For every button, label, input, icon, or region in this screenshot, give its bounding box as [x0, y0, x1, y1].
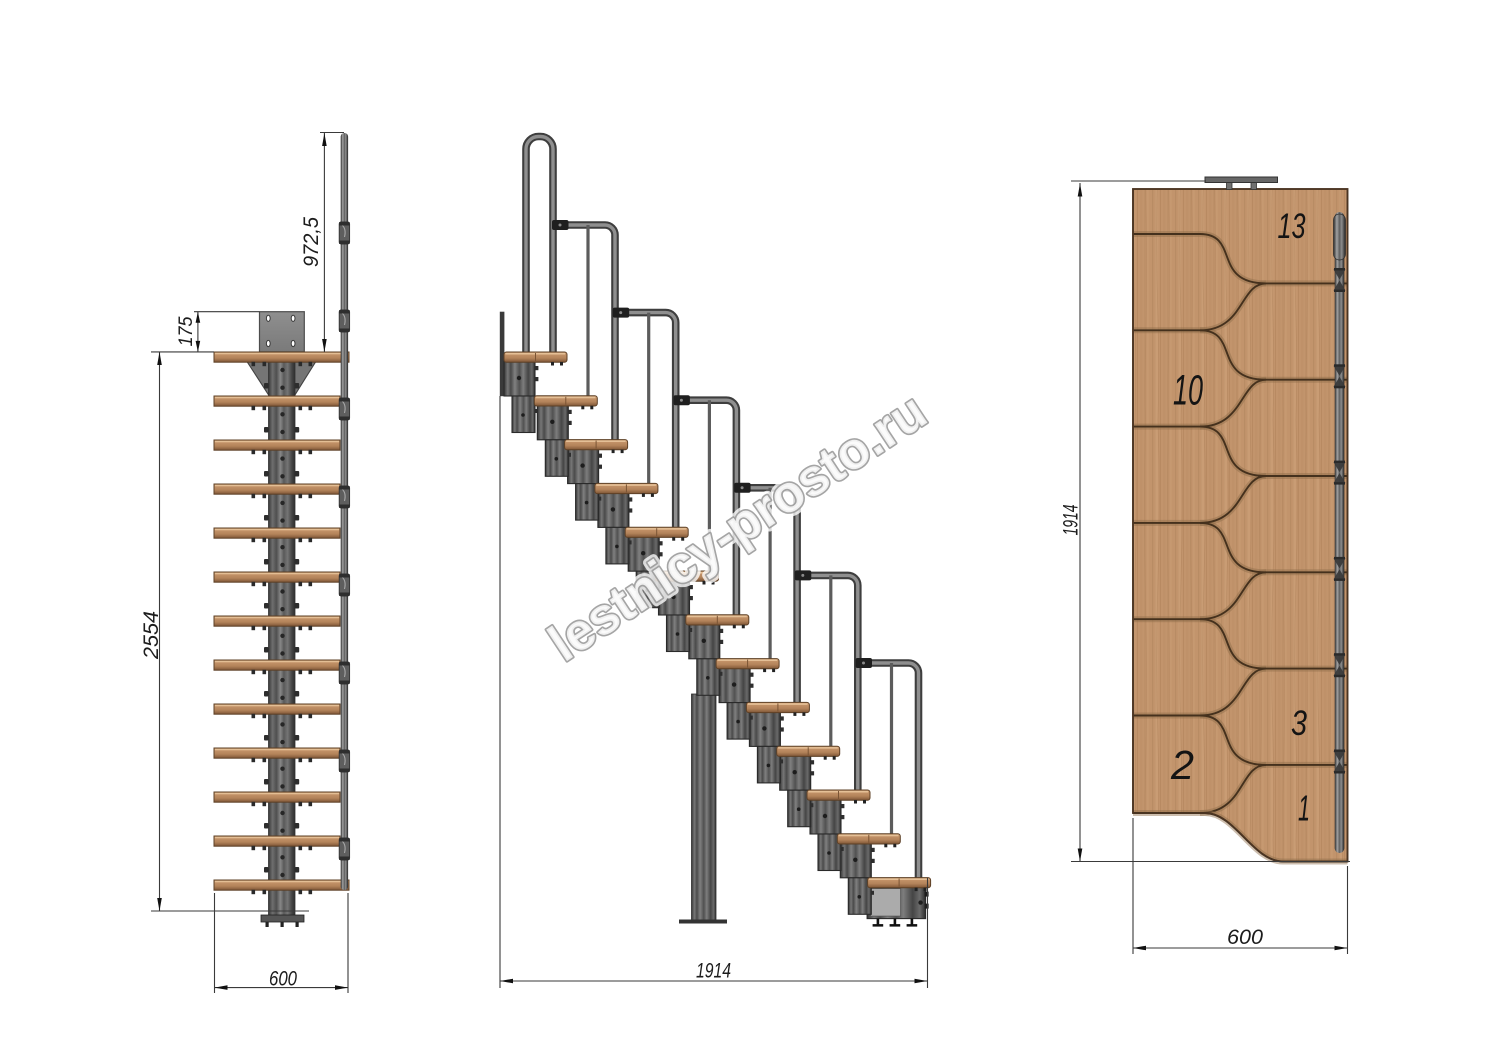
svg-text:175: 175 — [176, 316, 197, 346]
svg-text:600: 600 — [1227, 926, 1263, 949]
svg-text:1: 1 — [1298, 788, 1310, 829]
svg-text:600: 600 — [269, 968, 297, 991]
svg-text:972,5: 972,5 — [300, 217, 323, 267]
svg-text:2: 2 — [1170, 742, 1194, 788]
svg-text:1914: 1914 — [696, 960, 731, 983]
svg-text:2554: 2554 — [140, 611, 163, 660]
svg-text:3: 3 — [1291, 704, 1307, 743]
svg-text:10: 10 — [1173, 367, 1203, 415]
svg-text:1914: 1914 — [1060, 505, 1083, 536]
svg-text:13: 13 — [1278, 207, 1306, 246]
